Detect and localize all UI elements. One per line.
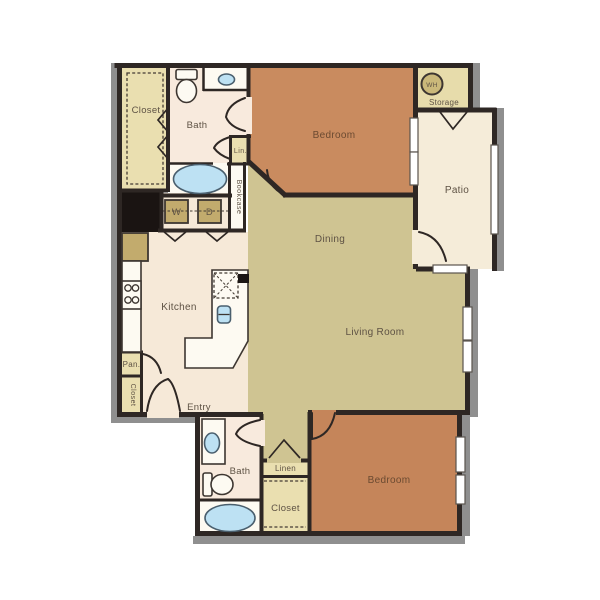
label-water-heater: WH xyxy=(426,82,437,89)
opening-linen xyxy=(267,458,301,463)
tub-top-icon xyxy=(174,165,227,194)
black-area xyxy=(122,191,161,232)
label-bath-bottom: Bath xyxy=(230,466,251,477)
toilet-tank-top-icon xyxy=(176,70,197,80)
room-closet-top-left xyxy=(122,68,168,191)
window-patio-bottom xyxy=(433,265,467,273)
label-closet-bottom: Closet xyxy=(271,503,300,514)
label-kitchen: Kitchen xyxy=(161,302,196,313)
label-bedroom-bottom: Bedroom xyxy=(368,475,411,486)
window-living-1 xyxy=(463,307,472,340)
window-bedroom-bottom-2 xyxy=(456,475,465,504)
window-bedroom-top-2 xyxy=(410,152,418,185)
counter-end-block xyxy=(238,274,249,283)
label-bookcase: Bookcase xyxy=(235,180,242,215)
floor-plan: Closet Bath Lin. Bookcase W D Bedroom WH… xyxy=(0,0,600,600)
floor-plan-canvas: Closet Bath Lin. Bookcase W D Bedroom WH… xyxy=(0,0,600,600)
shadow-left xyxy=(111,63,117,417)
label-patio: Patio xyxy=(445,185,469,196)
label-living-room: Living Room xyxy=(346,327,405,338)
label-dryer: D xyxy=(206,207,213,218)
window-bedroom-bottom-1 xyxy=(456,437,465,472)
window-patio-right xyxy=(491,145,498,234)
sink-top-icon xyxy=(219,74,235,85)
label-linen-top: Lin. xyxy=(234,148,247,155)
refrigerator-icon xyxy=(122,233,148,261)
shadow-bottom xyxy=(193,536,465,544)
window-living-2 xyxy=(463,341,472,372)
toilet-bowl-top-icon xyxy=(177,80,197,103)
opening-bath-bottom xyxy=(258,420,265,446)
label-bedroom-top: Bedroom xyxy=(313,130,356,141)
label-linen-bottom: Linen xyxy=(275,464,296,473)
opening-bath-top xyxy=(245,97,252,134)
opening-bedroom-bottom xyxy=(312,410,336,416)
label-pantry: Pan. xyxy=(123,360,141,369)
room-bedroom-bottom xyxy=(308,413,460,535)
stove-icon xyxy=(122,281,141,309)
toilet-bowl-bottom-icon xyxy=(211,475,233,495)
window-bedroom-top-1 xyxy=(410,118,418,152)
label-washer: W xyxy=(172,207,181,218)
opening-entry xyxy=(147,411,179,418)
label-closet-top-left: Closet xyxy=(132,105,161,116)
label-storage: Storage xyxy=(429,98,459,107)
label-entry: Entry xyxy=(187,402,211,413)
shadow-storage-right xyxy=(473,63,480,110)
tub-bottom-icon xyxy=(205,505,255,532)
opening-patio xyxy=(412,230,420,264)
label-dining: Dining xyxy=(315,234,345,245)
label-closet-left: Closet xyxy=(129,384,136,407)
sink-bottom-icon xyxy=(205,433,220,453)
label-bath-top: Bath xyxy=(187,120,208,131)
